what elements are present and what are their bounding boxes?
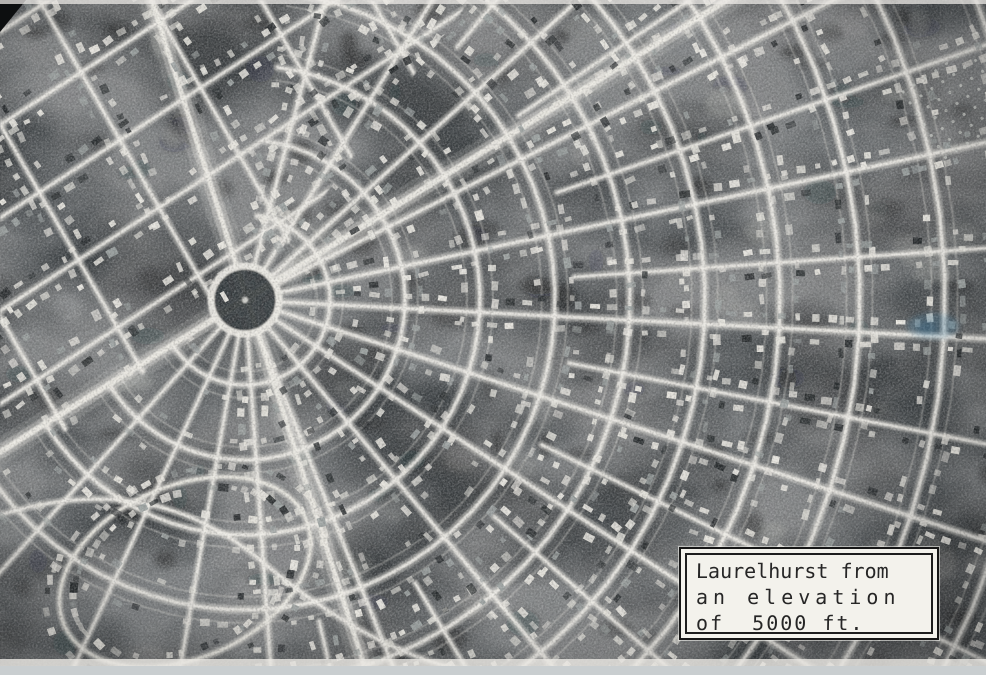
caption-box: Laurelhurst from an elevation of 5000 ft… [679,547,939,640]
aerial-photograph: Laurelhurst from an elevation of 5000 ft… [0,0,986,675]
caption-line-2: an elevation [696,584,931,610]
caption-line-3: of 5000 ft. [696,610,931,636]
photo-top-edge [0,0,986,4]
caption-inner-frame: Laurelhurst from an elevation of 5000 ft… [685,553,933,634]
scan-background-strip [0,666,986,675]
caption-line-1: Laurelhurst from [696,558,931,584]
scanned-photo-page: Laurelhurst from an elevation of 5000 ft… [0,0,986,675]
